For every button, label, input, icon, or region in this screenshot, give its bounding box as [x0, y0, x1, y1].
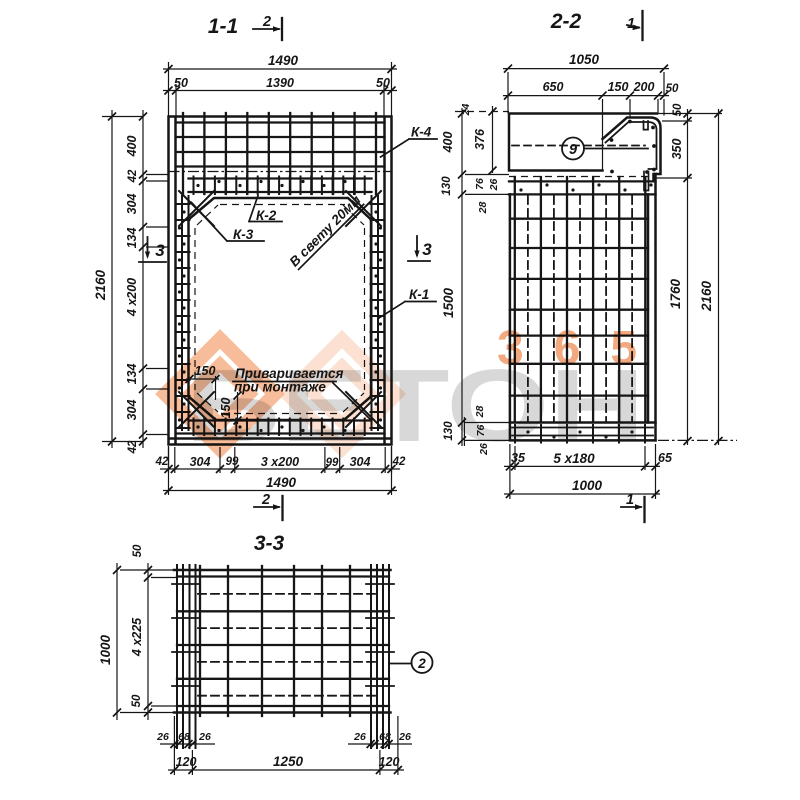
svg-text:2-2: 2-2 — [550, 10, 582, 33]
svg-text:304: 304 — [125, 194, 139, 215]
svg-text:1-1: 1-1 — [208, 15, 238, 38]
svg-text:К-1: К-1 — [409, 287, 429, 302]
svg-text:3 x200: 3 x200 — [261, 455, 299, 469]
svg-text:1760: 1760 — [668, 278, 683, 309]
svg-text:376: 376 — [473, 128, 487, 150]
svg-text:68: 68 — [178, 731, 190, 743]
svg-text:28: 28 — [477, 202, 489, 215]
svg-text:9: 9 — [569, 142, 577, 158]
svg-text:50: 50 — [132, 544, 144, 557]
svg-text:68: 68 — [379, 731, 391, 743]
svg-text:2: 2 — [417, 656, 426, 671]
svg-text:650: 650 — [543, 80, 564, 94]
svg-text:304: 304 — [125, 400, 139, 421]
svg-text:400: 400 — [441, 132, 455, 154]
svg-text:50: 50 — [376, 76, 390, 90]
svg-text:150: 150 — [608, 80, 629, 94]
svg-text:К-4: К-4 — [411, 125, 432, 140]
svg-text:1250: 1250 — [273, 754, 304, 769]
svg-text:5 x180: 5 x180 — [553, 451, 595, 466]
svg-text:134: 134 — [125, 364, 139, 385]
svg-text:99: 99 — [226, 456, 239, 468]
svg-text:76: 76 — [475, 425, 487, 437]
svg-text:50: 50 — [666, 83, 679, 95]
svg-text:1490: 1490 — [266, 475, 297, 490]
svg-text:42: 42 — [155, 456, 169, 468]
svg-text:3-3: 3-3 — [254, 532, 285, 555]
svg-text:28: 28 — [474, 406, 486, 419]
svg-text:2160: 2160 — [699, 280, 714, 312]
svg-text:130: 130 — [441, 176, 453, 196]
svg-text:130: 130 — [443, 421, 455, 441]
svg-text:1: 1 — [626, 492, 634, 508]
svg-text:304: 304 — [350, 455, 371, 469]
svg-text:26: 26 — [488, 179, 500, 192]
svg-text:26: 26 — [353, 731, 366, 743]
svg-text:1000: 1000 — [98, 634, 113, 665]
svg-text:3: 3 — [155, 241, 165, 260]
svg-text:1050: 1050 — [569, 52, 600, 67]
svg-text:35: 35 — [511, 451, 526, 465]
svg-text:42: 42 — [127, 169, 139, 183]
svg-text:26: 26 — [478, 443, 490, 456]
svg-text:400: 400 — [125, 136, 139, 158]
svg-text:24: 24 — [460, 104, 472, 117]
svg-text:120: 120 — [379, 755, 400, 769]
svg-text:1500: 1500 — [441, 287, 456, 318]
svg-text:2: 2 — [262, 14, 271, 30]
svg-text:120: 120 — [176, 755, 197, 769]
svg-text:2160: 2160 — [93, 269, 108, 301]
svg-text:1: 1 — [627, 16, 635, 32]
svg-text:99: 99 — [326, 457, 339, 469]
svg-text:304: 304 — [190, 455, 211, 469]
svg-text:4 x200: 4 x200 — [125, 278, 139, 317]
svg-text:42: 42 — [392, 456, 406, 468]
svg-text:1490: 1490 — [268, 53, 299, 68]
svg-text:3: 3 — [422, 240, 432, 259]
svg-text:350: 350 — [670, 139, 684, 160]
svg-text:200: 200 — [633, 80, 655, 94]
svg-text:134: 134 — [125, 228, 139, 249]
svg-text:1000: 1000 — [572, 478, 603, 493]
svg-text:26: 26 — [398, 731, 411, 743]
svg-text:50: 50 — [174, 76, 188, 90]
svg-text:65: 65 — [658, 451, 673, 465]
svg-text:4 x225: 4 x225 — [130, 617, 144, 657]
svg-text:26: 26 — [198, 731, 211, 743]
svg-text:42: 42 — [127, 440, 139, 454]
svg-text:50: 50 — [672, 103, 684, 116]
svg-text:50: 50 — [131, 694, 143, 707]
svg-text:365: 365 — [497, 322, 667, 375]
svg-text:К-3: К-3 — [233, 227, 254, 242]
svg-text:2: 2 — [261, 492, 270, 508]
svg-text:76: 76 — [474, 178, 486, 190]
svg-text:26: 26 — [156, 731, 169, 743]
svg-text:1390: 1390 — [266, 76, 294, 90]
